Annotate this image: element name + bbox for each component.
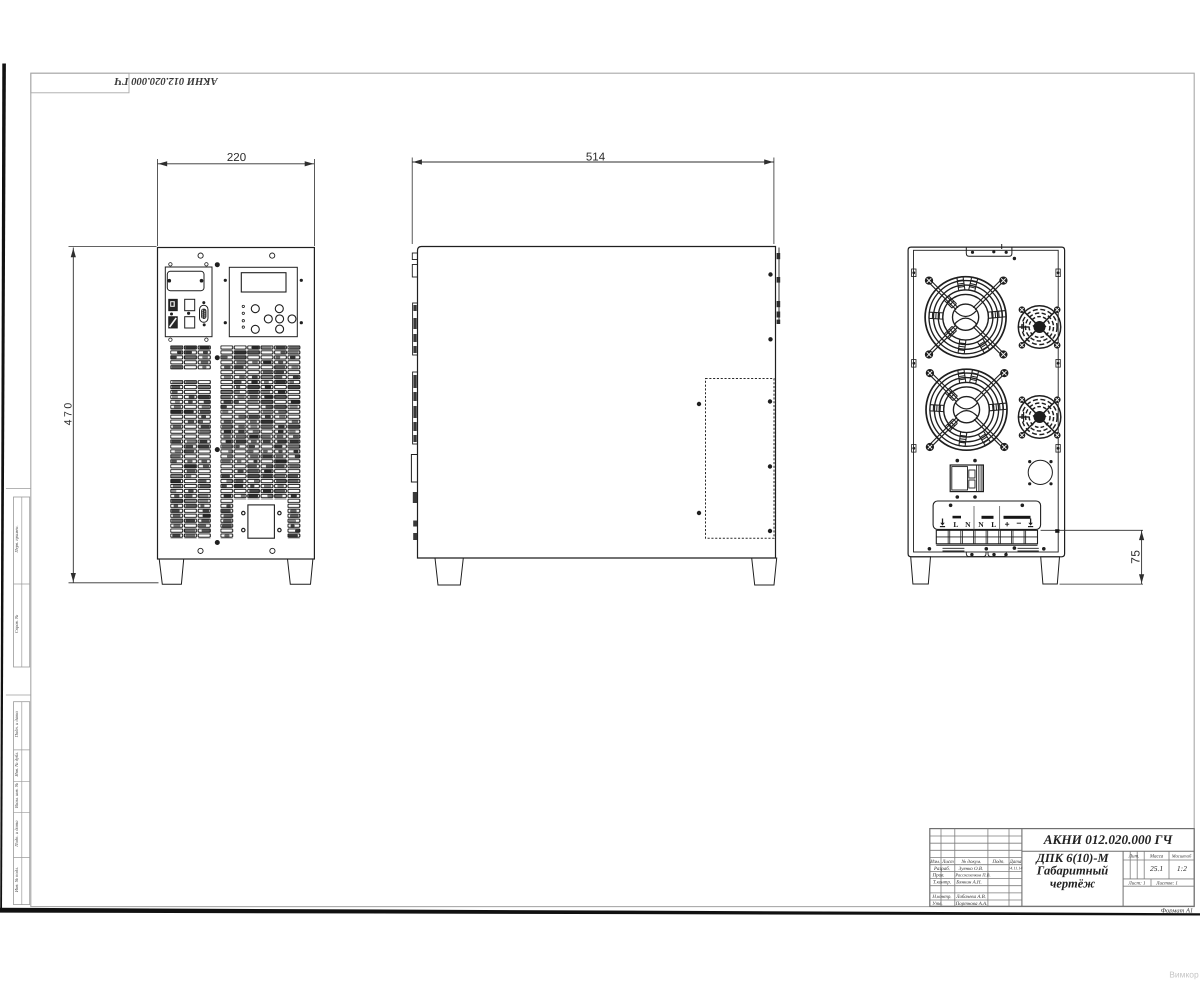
svg-text:Бянкин А.Н.: Бянкин А.Н. [955, 880, 982, 886]
svg-text:Формат А1: Формат А1 [1161, 907, 1193, 914]
svg-text:514: 514 [586, 151, 606, 163]
svg-text:Взам. инв. №: Взам. инв. № [14, 782, 19, 808]
svg-text:Справ. №: Справ. № [14, 614, 19, 633]
svg-text:470: 470 [62, 400, 74, 425]
svg-text:Масштаб: Масштаб [1171, 854, 1192, 859]
svg-text:Подп.: Подп. [991, 859, 1004, 865]
svg-text:Изм.: Изм. [929, 859, 940, 865]
svg-text:Подп. и дата: Подп. и дата [14, 820, 19, 848]
svg-text:Инв. № подл.: Инв. № подл. [14, 867, 19, 893]
svg-text:−: − [1016, 518, 1021, 528]
svg-text:Подп. и дата: Подп. и дата [14, 710, 19, 738]
svg-text:+: + [1005, 519, 1010, 529]
svg-text:Вимкор: Вимкор [1169, 970, 1199, 980]
svg-text:АКНИ 012.020.000 ГЧ: АКНИ 012.020.000 ГЧ [113, 75, 218, 86]
svg-text:Лобачева А.В.: Лобачева А.В. [955, 894, 986, 900]
svg-text:14.11.14: 14.11.14 [1008, 866, 1022, 871]
svg-text:чертёж: чертёж [1050, 877, 1095, 891]
svg-text:АКНИ 012.020.000 ГЧ: АКНИ 012.020.000 ГЧ [1043, 832, 1174, 847]
svg-text:Утв.: Утв. [932, 901, 942, 907]
svg-text:25.1: 25.1 [1150, 864, 1163, 873]
svg-text:Инв. № дубл.: Инв. № дубл. [14, 752, 19, 778]
svg-text:L: L [953, 520, 958, 529]
svg-text:Пров.: Пров. [931, 873, 944, 879]
svg-text:N: N [978, 520, 984, 529]
svg-text:Листов: 1: Листов: 1 [1155, 880, 1178, 886]
svg-text:Масса: Масса [1149, 854, 1164, 860]
svg-text:L: L [991, 520, 996, 529]
svg-text:Перв. примен.: Перв. примен. [14, 525, 19, 553]
svg-text:Зуенко О.В.: Зуенко О.В. [959, 866, 983, 872]
svg-text:Габаритный: Габаритный [1036, 864, 1109, 878]
svg-text:220: 220 [227, 152, 246, 164]
svg-text:№ докум.: № докум. [960, 859, 981, 865]
svg-text:Лист: Лист [941, 859, 954, 865]
svg-text:Н.контр.: Н.контр. [931, 894, 951, 900]
svg-text:Лист: 1: Лист: 1 [1127, 880, 1145, 886]
svg-text:Разраб.: Разраб. [933, 866, 950, 872]
svg-text:Дата: Дата [1009, 859, 1022, 865]
svg-text:Т.контр.: Т.контр. [933, 880, 951, 886]
svg-text:Рассказенков П.В.: Рассказенков П.В. [954, 873, 990, 878]
svg-text:Портнова А.А.: Портнова А.А. [955, 901, 988, 907]
svg-text:Лит.: Лит. [1128, 854, 1140, 860]
svg-text:N: N [965, 520, 971, 529]
svg-text:1:2: 1:2 [1177, 864, 1187, 873]
svg-text:75: 75 [1128, 550, 1142, 564]
